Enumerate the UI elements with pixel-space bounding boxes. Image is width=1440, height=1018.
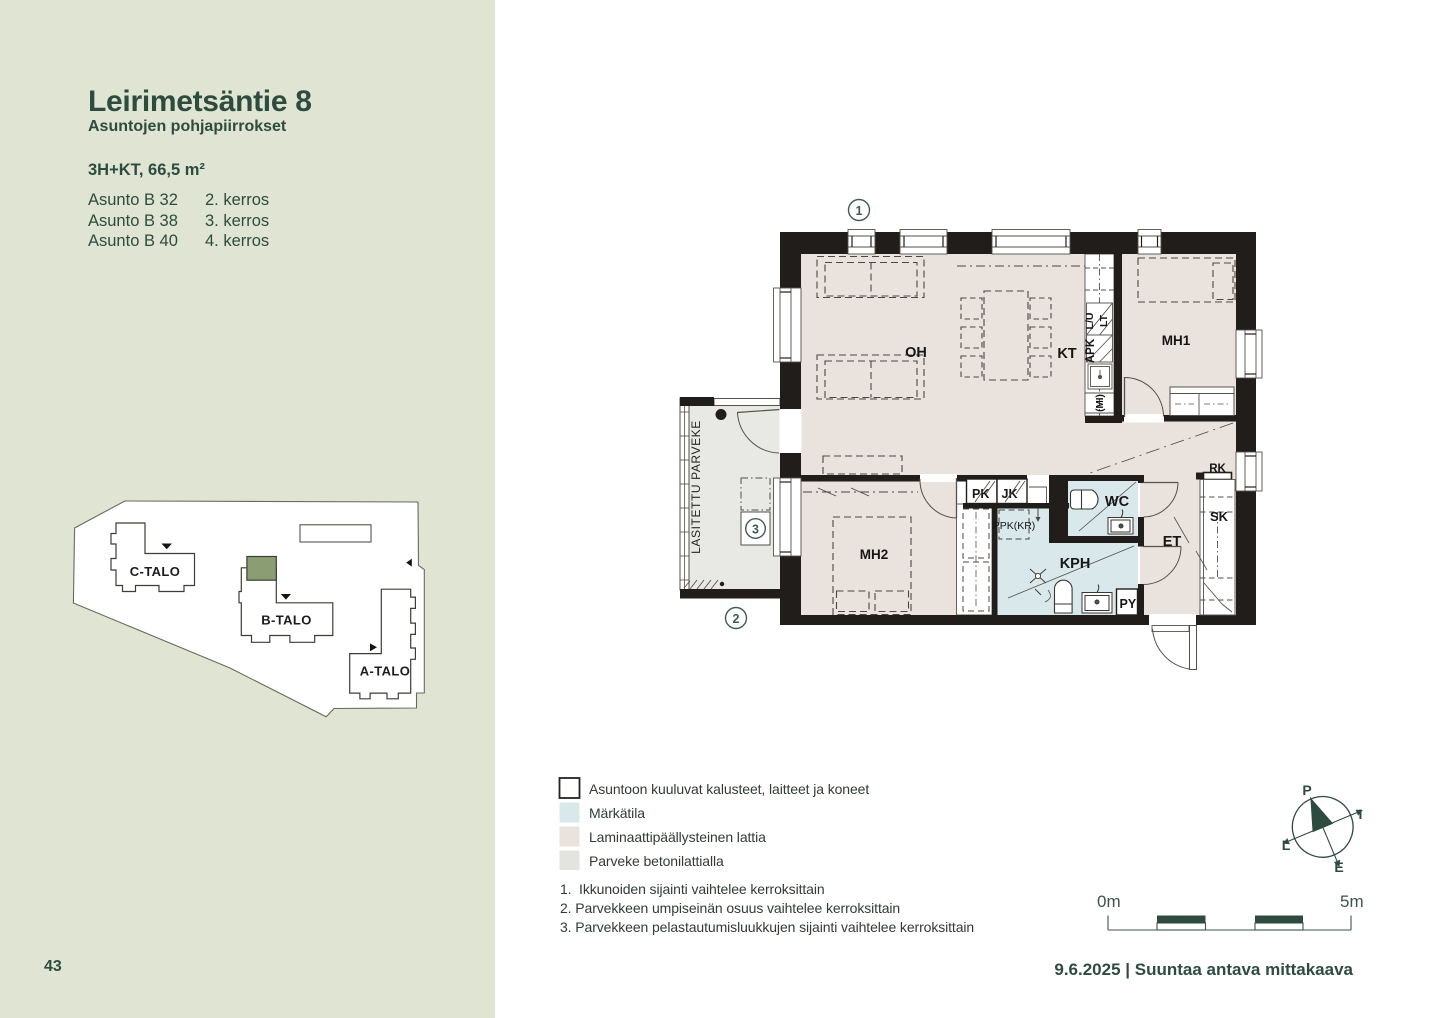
svg-text:0m: 0m (1097, 892, 1121, 911)
svg-text:KT: KT (1057, 346, 1076, 362)
svg-text:APK: APK (1085, 338, 1097, 363)
svg-text:E: E (1334, 859, 1343, 875)
svg-text:MH1: MH1 (1162, 333, 1191, 348)
svg-text:C-TALO: C-TALO (130, 564, 181, 579)
svg-text:L: L (1282, 837, 1291, 853)
svg-text:JK: JK (1002, 487, 1018, 501)
svg-text:KPH: KPH (1060, 556, 1091, 572)
svg-text:3: 3 (752, 522, 759, 536)
svg-text:SK: SK (1210, 509, 1229, 524)
svg-text:ET: ET (1163, 534, 1182, 550)
svg-text:LASITETTU PARVEKE: LASITETTU PARVEKE (689, 420, 703, 554)
svg-text:A-TALO: A-TALO (360, 664, 411, 679)
svg-text:PPK(KR): PPK(KR) (993, 520, 1036, 532)
svg-text:B-TALO: B-TALO (261, 613, 312, 628)
svg-text:(MI): (MI) (1095, 394, 1106, 412)
svg-text:P: P (1302, 782, 1311, 798)
svg-text:OH: OH (905, 345, 927, 361)
svg-text:L/U: L/U (1084, 313, 1096, 330)
svg-text:5m: 5m (1340, 892, 1364, 911)
svg-text:MH2: MH2 (860, 547, 889, 562)
svg-text:LT: LT (1098, 314, 1110, 327)
svg-text:1: 1 (856, 204, 863, 218)
svg-text:PY: PY (1120, 597, 1137, 611)
svg-text:2: 2 (733, 612, 740, 626)
svg-text:WC: WC (1105, 494, 1130, 510)
svg-text:I: I (1359, 806, 1363, 822)
